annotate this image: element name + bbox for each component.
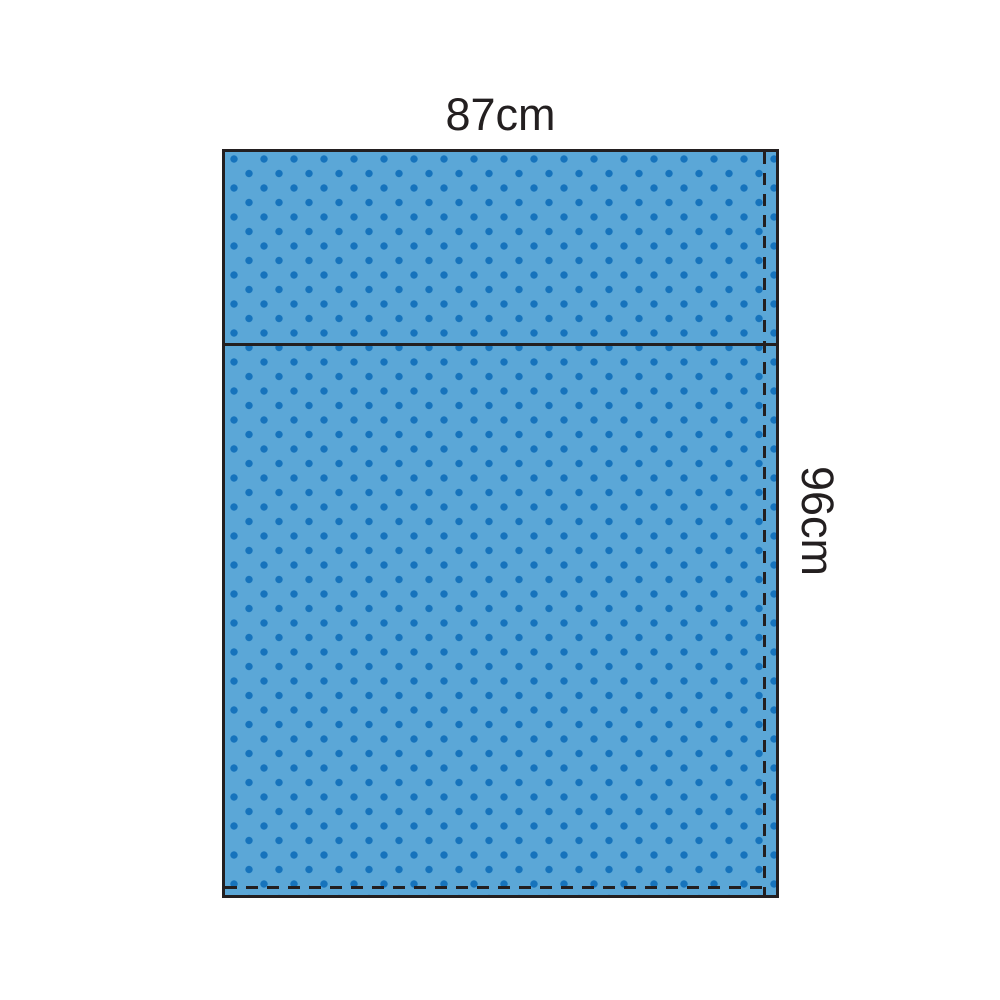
bottom-perforation-line [225,886,768,889]
drape-dimension-diagram: 87cm 96cm [0,0,1000,1000]
height-dimension-label: 96cm [792,466,842,576]
drape-rect [222,149,779,898]
width-dimension-label: 87cm [222,90,779,140]
right-perforation-line [763,152,766,895]
fold-line [225,343,776,346]
